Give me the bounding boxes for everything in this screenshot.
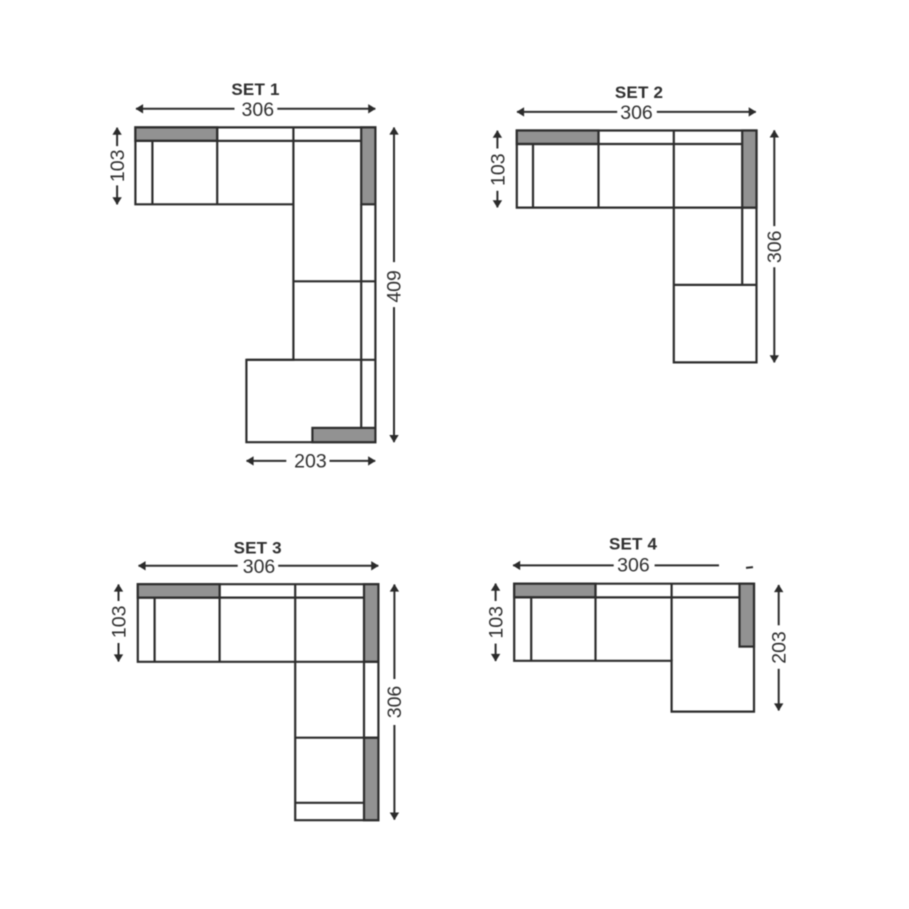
svg-text:306: 306 [617,554,650,576]
svg-text:SET 2: SET 2 [615,83,663,102]
svg-text:306: 306 [243,556,276,578]
svg-text:306: 306 [764,231,786,264]
svg-text:306: 306 [620,102,653,124]
svg-text:SET 3: SET 3 [234,539,282,558]
svg-text:103: 103 [486,606,508,639]
svg-text:306: 306 [384,686,406,719]
svg-text:203: 203 [769,631,791,664]
svg-text:SET 1: SET 1 [231,80,279,99]
svg-text:203: 203 [294,451,327,473]
svg-text:103: 103 [487,153,509,186]
svg-text:409: 409 [384,270,406,303]
svg-text:SET 4: SET 4 [609,535,658,554]
svg-text:103: 103 [108,606,130,639]
svg-text:306: 306 [242,99,275,121]
svg-text:103: 103 [107,150,129,183]
